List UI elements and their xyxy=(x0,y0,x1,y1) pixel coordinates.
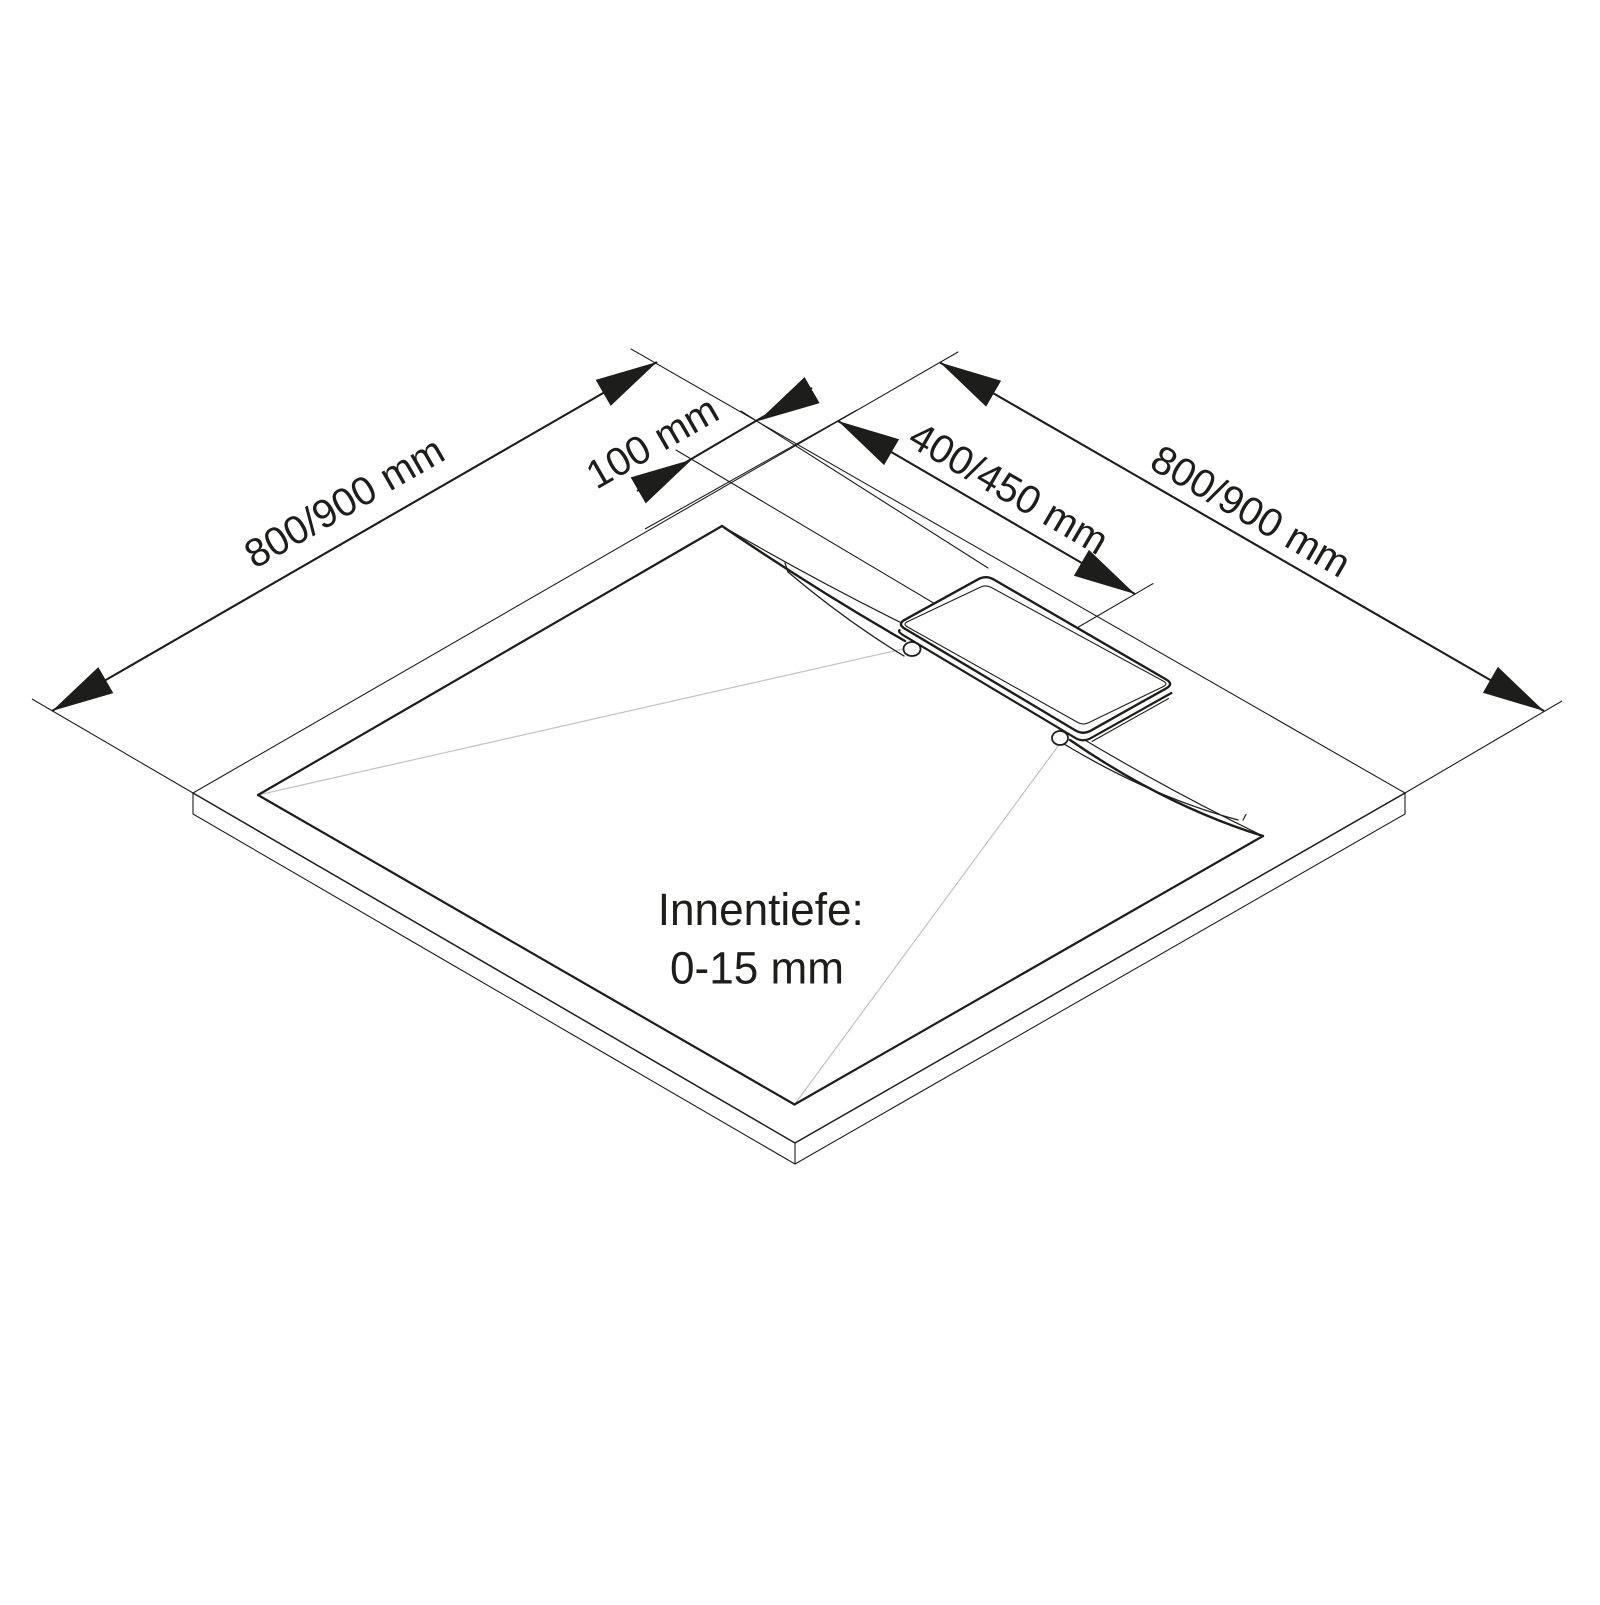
svg-text:0-15 mm: 0-15 mm xyxy=(670,944,844,993)
svg-text:Innentiefe:: Innentiefe: xyxy=(658,886,864,935)
